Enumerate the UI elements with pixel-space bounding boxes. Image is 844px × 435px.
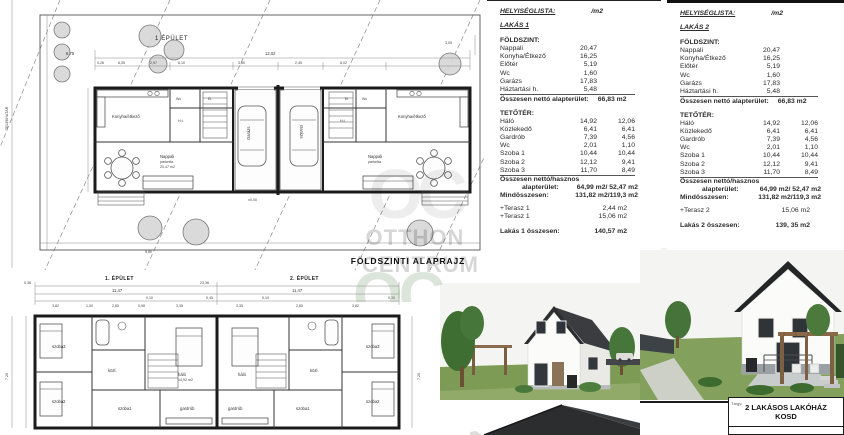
panel1-ground-total-label: Összesen nettó alapterület: (500, 96, 589, 104)
dim-label: 2,80 (112, 304, 119, 308)
room-row: Előtér5,19 (500, 61, 635, 69)
room-cell: Közlekedő (500, 126, 553, 134)
panel2-ground-total-value: 66,83 m2 (778, 98, 807, 106)
room-cell: 10,44 (597, 150, 635, 158)
building-label: 1 ÉPÜLET (155, 35, 188, 42)
room-cell: Előtér (500, 61, 553, 69)
panel1-terrace-rows: +Terasz 12,44 m2+Terasz 115,06 m2 (500, 205, 653, 221)
attic-building1-label: 1. ÉPÜLET (105, 274, 134, 282)
dim-label: 3,60 (238, 61, 245, 65)
room-cell: Szoba 3 (500, 167, 553, 175)
room-label-entry-1: El. (208, 97, 212, 101)
ground-floor-plan-drawing: 1 ÉPÜLET 12,02 6,75 0,26 6,35 2,97 6,10 … (0, 0, 485, 270)
panel1-net-label1: Összesen nettó/hasznos (500, 176, 653, 184)
dim-label: 0,98 (138, 304, 145, 308)
title-block: Tárgy: 2 LAKÁSOS LAKÓHÁZ KOSD (728, 397, 844, 435)
dim-label: 0,35 (388, 296, 395, 300)
room-row: Háztartási h.5,48 (500, 86, 635, 95)
room-cell: Háló (500, 118, 553, 126)
room-cell: Előtér (680, 63, 736, 71)
panel1-ground-total-value: 66,83 m2 (598, 96, 627, 104)
panel1-attic-rows: Háló14,9212,06Közlekedő6,416,41Gardrób7,… (500, 118, 635, 176)
dim-label: 5,80 (145, 250, 152, 254)
room-row: Wc1,60 (680, 72, 818, 80)
room-row: Szoba 110,4410,44 (680, 152, 818, 160)
room-cell: 14,92 (553, 118, 597, 126)
room-row: Wc2,011,10 (680, 144, 818, 152)
room-cell: 12,12 (553, 159, 597, 167)
room-cell: Szoba 1 (680, 152, 736, 160)
panel1-sum-label: Lakás 1 összesen: (500, 228, 560, 236)
room-row: Wc1,60 (500, 70, 635, 78)
room-cell: 16,25 (553, 53, 597, 61)
room-area-1: 20,47 m2 (160, 165, 175, 169)
room-row: Szoba 212,129,41 (680, 161, 818, 169)
room-label-living-2: Nappali (368, 154, 382, 159)
render-roof-partial (470, 403, 640, 435)
room-row: Konyha/Étkező16,25 (500, 53, 635, 61)
room-cell (780, 55, 818, 63)
room-cell: Wc (500, 70, 553, 78)
room-row: Wc2,011,10 (500, 142, 635, 150)
dim-label: 12,02 (265, 51, 276, 56)
dim-label: 2,45 (295, 61, 302, 65)
room-row: Közlekedő6,416,41 (500, 126, 635, 134)
room-cell: Háztartási h. (500, 86, 553, 94)
dim-label: 6,35 (118, 61, 125, 65)
room-cell: 5,48 (553, 86, 597, 94)
room-cell: Wc (680, 144, 736, 152)
room-row: Közlekedő6,416,41 (680, 128, 818, 136)
panel2-attic-rows: Háló14,9212,06Közlekedő6,416,41Gardrób7,… (680, 120, 818, 178)
room-label-ht-1: H.t. (178, 119, 184, 123)
dim-label: 3,05 (445, 41, 452, 45)
room-cell: Háló (680, 120, 736, 128)
panel1-attic-title: TETŐTÉR: (500, 110, 653, 118)
project-title-line1: 2 LAKÁSOS LAKÓHÁZ (729, 403, 843, 412)
dim-label: 8,02 (340, 61, 347, 65)
room-label-kozl-1: közl. (108, 368, 117, 373)
room-cell: 20,47 (736, 47, 780, 55)
dim-label: 11,47 (292, 288, 303, 293)
attic-floor-plan-drawing: 1. ÉPÜLET 2. ÉPÜLET 23,36 0,36 11,47 11,… (0, 270, 465, 435)
dim-label: 0,36 (24, 281, 31, 285)
room-label-szoba1-2: szoba1 (296, 406, 310, 411)
room-cell: Garázs (500, 78, 553, 86)
room-row: Szoba 311,708,49 (500, 167, 635, 176)
room-label-szoba3-2: szoba3 (366, 344, 380, 349)
project-title-line2: KOSD (729, 412, 843, 421)
room-cell: Közlekedő (680, 128, 736, 136)
panel1-grand-value: 131,82 m2/119,3 m2 (575, 192, 638, 200)
room-cell (597, 61, 635, 69)
panel1-sum-value: 140,57 m2 (594, 228, 627, 236)
panel1-header: HELYISÉGLISTA: (500, 8, 555, 16)
render-rear-view (640, 248, 844, 400)
room-row: Háztartási h.5,48 (680, 88, 818, 97)
room-row: Konyha/Étkező16,25 (680, 55, 818, 63)
room-cell: 11,70 (736, 169, 780, 177)
room-cell: 1,10 (597, 142, 635, 150)
room-cell (780, 72, 818, 80)
dim-label: 2,97 (150, 61, 157, 65)
room-label-kitchen-1: Konyha/étkező (112, 114, 140, 119)
panel2-net-label2: alapterület: (702, 186, 739, 194)
room-cell: Gardrób (680, 136, 736, 144)
dim-label: 6,10 (178, 61, 185, 65)
panel2-terrace-rows: +Terasz 215,06 m2 (680, 207, 836, 215)
room-list-panel-1: HELYISÉGLISTA: /m2 LAKÁS 1 FÖLDSZINT: Na… (487, 0, 661, 250)
room-label-garage-1: Garázs (246, 127, 251, 141)
room-cell (597, 53, 635, 61)
room-label-entry-2: El. (345, 97, 349, 101)
panel2-ground-total-label: Összesen nettó alapterület: (680, 98, 769, 106)
room-row: Gardrób7,394,56 (680, 136, 818, 144)
dim-label: 1,00 (86, 304, 93, 308)
room-cell (780, 80, 818, 88)
room-label-szoba3-1: szoba3 (52, 344, 66, 349)
room-cell (597, 45, 635, 53)
room-cell: 16,25 (736, 55, 780, 63)
panel2-attic-title: TETŐTÉR: (680, 112, 836, 120)
panel1-grand-label: Mindösszesen: (500, 192, 549, 200)
room-cell: Háztartási h. (680, 88, 736, 96)
room-cell: 7,39 (736, 136, 780, 144)
room-row: Gardrób7,394,56 (500, 134, 635, 142)
room-label-wc-2: Wc (362, 97, 367, 101)
room-cell: 6,41 (736, 128, 780, 136)
room-cell: 1,10 (780, 144, 818, 152)
room-cell: Szoba 2 (680, 161, 736, 169)
room-cell: 6,41 (553, 126, 597, 134)
panel2-unit: /m2 (771, 10, 783, 18)
room-cell: 17,83 (736, 80, 780, 88)
dim-label: 7,20 (5, 373, 9, 380)
room-material-1: parketta (160, 160, 173, 164)
room-material-2: parketta (368, 160, 381, 164)
room-cell: 4,56 (780, 136, 818, 144)
level-marker: ±0,00 (248, 198, 257, 202)
dim-label: 0,45 (206, 296, 213, 300)
room-cell: 15,06 m2 (553, 213, 627, 221)
room-cell: Szoba 1 (500, 150, 553, 158)
room-cell: 10,44 (736, 152, 780, 160)
panel1-net-label2: alapterület: (522, 184, 559, 192)
room-row: Garázs17,83 (500, 78, 635, 86)
room-cell: 9,41 (597, 159, 635, 167)
room-cell: 1,60 (736, 72, 780, 80)
room-cell: 14,92 (736, 120, 780, 128)
room-list-panel-2: HELYISÉGLISTA: /m2 LAKÁS 2 FÖLDSZINT: Na… (667, 0, 844, 250)
panel2-ground-title: FÖLDSZINT: (680, 39, 836, 47)
room-cell: 2,44 m2 (553, 205, 627, 213)
room-row: Háló14,9212,06 (500, 118, 635, 126)
room-cell: 8,49 (597, 167, 635, 175)
room-area-halo-1: 14,92 m2 (178, 378, 193, 382)
room-cell: Szoba 2 (500, 159, 553, 167)
room-cell: +Terasz 1 (500, 213, 553, 221)
panel2-ground-rows: Nappali20,47Konyha/Étkező16,25Előtér5,19… (680, 47, 818, 97)
room-cell: 11,70 (553, 167, 597, 175)
panel1-net-value: 64,99 m2/ 52,47 m2 (577, 184, 638, 192)
attic-buildings (35, 316, 399, 428)
panel1-unit: /m2 (591, 8, 603, 16)
room-label-kitchen-2: Konyha/étkező (398, 114, 426, 119)
room-row: Háló14,9212,06 (680, 120, 818, 128)
room-cell (780, 88, 818, 96)
room-cell: 2,01 (553, 142, 597, 150)
room-cell: 2,01 (736, 144, 780, 152)
panel2-grand-label: Mindösszesen: (680, 194, 729, 202)
dim-label: 2,80 (296, 304, 303, 308)
ground-plan-caption: FÖLDSZINTI ALAPRAJZ (351, 256, 466, 266)
dim-label: 23,36 (200, 281, 209, 285)
room-cell: 5,19 (553, 61, 597, 69)
room-cell: Garázs (680, 80, 736, 88)
panel2-net-value: 64,99 m2/ 52,47 m2 (760, 186, 821, 194)
room-cell (597, 86, 635, 94)
dim-label: 0,26 (97, 61, 104, 65)
room-cell: 9,41 (780, 161, 818, 169)
room-cell: Szoba 3 (680, 169, 736, 177)
room-cell: Konyha/Étkező (680, 55, 736, 63)
dim-label: 3,35 (236, 304, 243, 308)
panel2-net-label1: Összesen nettó/hasznos (680, 178, 836, 186)
plan-sheet: 1 ÉPÜLET 12,02 6,75 0,26 6,35 2,97 6,10 … (0, 0, 844, 435)
room-cell (780, 47, 818, 55)
room-cell: 10,44 (780, 152, 818, 160)
room-cell: 5,19 (736, 63, 780, 71)
render-front-view (440, 283, 640, 400)
boundary-label: TELEKHATÁR (5, 106, 9, 130)
room-row: Szoba 311,708,49 (680, 169, 818, 178)
panel1-ground-rows: Nappali20,47Konyha/Étkező16,25Előtér5,19… (500, 45, 635, 95)
room-row: Garázs17,83 (680, 80, 818, 88)
room-label-ht-2: H.t. (340, 119, 346, 123)
room-cell: Gardrób (500, 134, 553, 142)
room-cell: 10,44 (553, 150, 597, 158)
room-cell: 4,56 (597, 134, 635, 142)
room-label-halo-2: háló (238, 372, 247, 377)
dim-label: 11,47 (112, 288, 123, 293)
room-label-szoba1-1: szoba1 (118, 406, 132, 411)
room-cell: +Terasz 2 (680, 207, 736, 215)
room-label-wc-1: Wc (176, 97, 181, 101)
room-label-garage-2: Garázs (299, 125, 304, 139)
room-row: +Terasz 115,06 m2 (500, 213, 627, 221)
room-cell: 7,39 (553, 134, 597, 142)
panel2-apartment: LAKÁS 2 (680, 24, 836, 32)
room-label-halo-1: háló (178, 372, 187, 377)
dim-label: 6,75 (66, 51, 75, 56)
dim-label: 3,82 (52, 304, 59, 308)
panel2-grand-value: 131,82 m2/119,3 m2 (758, 194, 821, 202)
title-block-field-label: Tárgy: (731, 399, 742, 408)
title-block-sub-row (729, 427, 843, 433)
room-cell: 6,41 (597, 126, 635, 134)
room-cell: 12,06 (597, 118, 635, 126)
room-row: Szoba 110,4410,44 (500, 150, 635, 158)
dim-label: 0,10 (146, 296, 153, 300)
room-cell (597, 70, 635, 78)
panel1-apartment: LAKÁS 1 (500, 22, 653, 30)
divider-line (640, 401, 728, 403)
dim-label: 3,82 (352, 304, 359, 308)
room-cell: Wc (500, 142, 553, 150)
room-cell (597, 78, 635, 86)
dim-label: 3,35 (176, 304, 183, 308)
room-cell: Konyha/Étkező (500, 53, 553, 61)
room-label-szoba2-1: szoba2 (52, 399, 66, 404)
room-label-gardrob-1: gardrób (180, 406, 195, 411)
attic-building2-label: 2. ÉPÜLET (290, 274, 319, 282)
dim-label: 7,20 (417, 373, 421, 380)
panel2-sum-label: Lakás 2 összesen: (680, 222, 740, 230)
room-label-living-1: Nappali (160, 154, 174, 159)
room-row: Szoba 212,129,41 (500, 159, 635, 167)
panel2-header: HELYISÉGLISTA: (680, 10, 735, 18)
room-cell: 5,48 (736, 88, 780, 96)
room-cell: 6,41 (780, 128, 818, 136)
room-cell: 12,06 (780, 120, 818, 128)
room-cell: 17,83 (553, 78, 597, 86)
room-cell (780, 63, 818, 71)
dim-label: 0,10 (262, 296, 269, 300)
room-cell: 15,06 m2 (736, 207, 810, 215)
room-row: +Terasz 215,06 m2 (680, 207, 810, 215)
room-cell: 12,12 (736, 161, 780, 169)
room-cell: Wc (680, 72, 736, 80)
room-cell: 1,60 (553, 70, 597, 78)
room-cell: 20,47 (553, 45, 597, 53)
room-label-kozl-2: közl. (310, 368, 319, 373)
room-row: Előtér5,19 (680, 63, 818, 71)
panel1-ground-title: FÖLDSZINT: (500, 37, 653, 45)
room-label-gardrob-2: gardrób (228, 406, 243, 411)
panel2-sum-value: 139, 35 m2 (776, 222, 810, 230)
room-label-szoba2-2: szoba2 (366, 399, 380, 404)
room-cell: 8,49 (780, 169, 818, 177)
room-row: +Terasz 12,44 m2 (500, 205, 627, 213)
room-cell: +Terasz 1 (500, 205, 553, 213)
